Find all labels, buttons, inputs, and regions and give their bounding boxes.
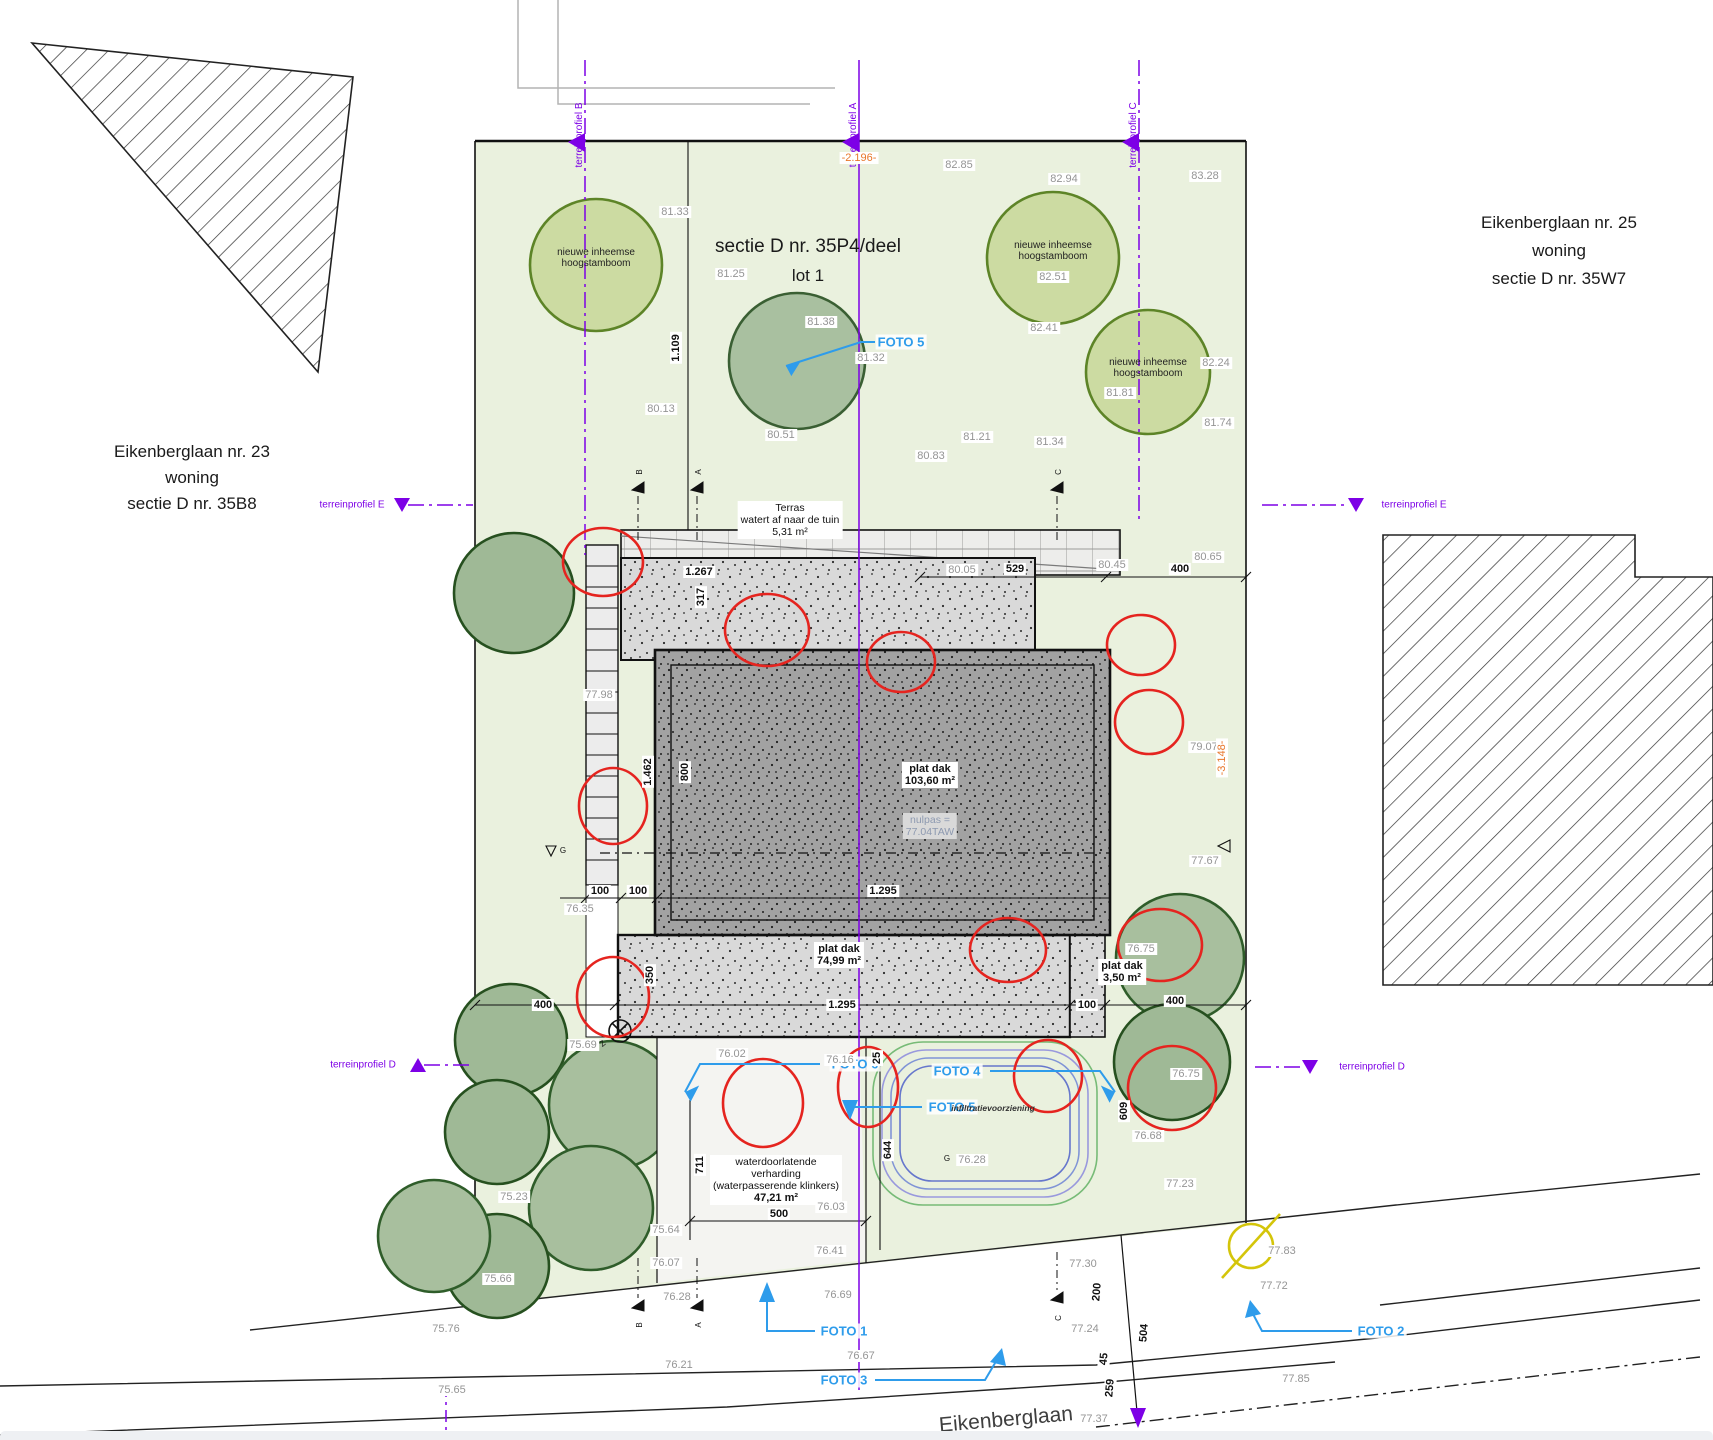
spot-height: 75.23: [498, 1191, 530, 1203]
dimension-label: 200: [1090, 1280, 1104, 1303]
paving-line3: (waterpasserende klinkers): [713, 1180, 839, 1192]
spot-height: 82.85: [943, 159, 975, 171]
spot-height: 76.28: [956, 1154, 988, 1166]
roof-small-label: plat dak 3,50 m²: [1098, 959, 1146, 985]
spot-height: 75.66: [482, 1273, 514, 1285]
foto5-top-label: FOTO 5: [876, 335, 927, 350]
spot-height: 83.28: [1189, 170, 1221, 182]
spot-height: 75.76: [430, 1323, 462, 1335]
nulpas-line2: 77.04TAW: [906, 826, 954, 838]
neighbor-23-line1: Eikenberglaan nr. 23: [114, 439, 270, 465]
tree-label-line2: hoogstamboom: [1109, 368, 1187, 379]
paving-label: waterdoorlatende verharding (waterpasser…: [710, 1155, 842, 1205]
spot-height: 76.35: [564, 903, 596, 915]
dimension-label: 1.295: [826, 999, 858, 1011]
dimension-label: 1.462: [642, 756, 654, 788]
foto4-label: FOTO 4: [932, 1064, 983, 1079]
spot-height: 77.23: [1164, 1178, 1196, 1190]
terras-label: Terras watert af naar de tuin 5,31 m²: [738, 501, 843, 539]
bottom-scrollbar[interactable]: [0, 1431, 1713, 1440]
spot-height: 82.51: [1037, 271, 1069, 283]
profile-label-e-right: terreinprofiel E: [1381, 500, 1446, 511]
dimension-label: 500: [768, 1208, 790, 1220]
spot-height: 76.16: [824, 1054, 856, 1066]
roof-small-line1: plat dak: [1101, 960, 1143, 972]
tree-label-1: nieuwe inheemse hoogstamboom: [557, 247, 635, 269]
profile-label-b: terreinprofiel B: [574, 102, 585, 167]
foto1-label: FOTO 1: [819, 1324, 870, 1339]
spot-height: 76.02: [716, 1048, 748, 1060]
section-marker-letter: A: [695, 1322, 703, 1327]
neighbor-25-line1: Eikenberglaan nr. 25: [1481, 210, 1637, 236]
paving-line1: waterdoorlatende: [713, 1156, 839, 1168]
spot-height: 81.33: [659, 206, 691, 218]
spot-height: 76.07: [650, 1257, 682, 1269]
dimension-label: 711: [694, 1154, 706, 1176]
old-outline-lines: [518, 0, 835, 104]
spot-height: 75.64: [650, 1224, 682, 1236]
roof-main-label: plat dak 103,60 m²: [902, 762, 958, 788]
tree: [378, 1180, 490, 1292]
spot-height: 80.65: [1192, 551, 1224, 563]
section-marker-letter: C: [1055, 1315, 1063, 1321]
terras-line2: watert af naar de tuin: [741, 514, 840, 526]
dimension-label: 100: [589, 885, 611, 897]
tree-label-line2: hoogstamboom: [1014, 251, 1092, 262]
spot-height: 82.94: [1048, 173, 1080, 185]
section-marker-letter: B: [636, 469, 644, 474]
spot-height: 82.41: [1028, 322, 1060, 334]
infiltration-label: infiltratievoorziening: [951, 1103, 1035, 1113]
spot-height: 75.65: [436, 1384, 468, 1396]
dimension-label: 609: [1118, 1100, 1130, 1122]
roof-main-line2: 103,60 m²: [905, 775, 955, 787]
profile-label-e-left: terreinprofiel E: [319, 500, 384, 511]
orange-dimension-label: -3.148-: [1216, 739, 1228, 778]
parcel-title-line1: sectie D nr. 35P4/deel: [715, 236, 901, 258]
spot-height: 76.68: [1132, 1130, 1164, 1142]
section-marker-letter: B: [636, 1322, 644, 1327]
parcel-title-line2: lot 1: [792, 266, 824, 286]
spot-height: 80.83: [915, 450, 947, 462]
tree: [454, 533, 574, 653]
roof-low-line2: 74,99 m²: [817, 955, 861, 967]
spot-height: 81.74: [1202, 417, 1234, 429]
foto3-label: FOTO 3: [819, 1373, 870, 1388]
spot-height: 81.81: [1104, 387, 1136, 399]
dimension-label: 100: [627, 885, 649, 897]
spot-height: 77.83: [1266, 1245, 1298, 1257]
spot-height: 80.51: [765, 429, 797, 441]
profile-label-d-right: terreinprofiel D: [1339, 1062, 1405, 1073]
foto2-label: FOTO 2: [1356, 1324, 1407, 1339]
tree-label-2: nieuwe inheemse hoogstamboom: [1014, 240, 1092, 262]
spot-height: 77.24: [1069, 1323, 1101, 1335]
tree: [445, 1080, 549, 1184]
tree: [729, 293, 865, 429]
dimension-label: 1.267: [683, 566, 715, 578]
dimension-label: 100: [1076, 999, 1098, 1011]
spot-height: 76.69: [822, 1289, 854, 1301]
tree-label-line2: hoogstamboom: [557, 258, 635, 269]
dimension-label: 400: [532, 999, 554, 1011]
roof-small-line2: 3,50 m²: [1103, 972, 1141, 984]
roof-low-label: plat dak 74,99 m²: [814, 942, 864, 968]
profile-label-c: terreinprofiel C: [1128, 102, 1139, 168]
spot-height: 80.45: [1096, 559, 1128, 571]
neighbor-23-line3: sectie D nr. 35B8: [127, 491, 256, 517]
spot-height: 77.30: [1067, 1258, 1099, 1270]
spot-height: 81.25: [715, 268, 747, 280]
spot-height: 76.67: [845, 1350, 877, 1362]
tree-label-line1: nieuwe inheemse: [557, 247, 635, 258]
spot-height: 76.21: [663, 1359, 695, 1371]
spot-height: 77.98: [583, 689, 615, 701]
section-marker-letter: C: [1055, 469, 1063, 475]
dimension-label: 529: [1004, 563, 1026, 575]
neighbor-building-23: [32, 43, 353, 372]
dimension-label: 45: [1097, 1350, 1110, 1367]
nulpas-label: nulpas = 77.04TAW: [903, 813, 957, 839]
spot-height: 77.85: [1280, 1373, 1312, 1385]
dimension-label: 317: [695, 586, 707, 608]
dimension-label: 800: [679, 761, 691, 783]
orange-dimension-label: -2.196-: [840, 152, 879, 164]
section-marker-letter: G: [944, 1155, 950, 1163]
spot-height: 82.24: [1200, 357, 1232, 369]
dimension-label: 1.295: [867, 885, 899, 897]
dimension-label: 644: [882, 1139, 894, 1161]
dimension-label: 400: [1169, 563, 1191, 575]
dimension-label: 504: [1137, 1321, 1151, 1344]
terras-line3: 5,31 m²: [741, 526, 840, 538]
section-marker-letter: A: [695, 469, 703, 474]
spot-height: 75.69: [567, 1039, 599, 1051]
neighbor-25-line3: sectie D nr. 35W7: [1492, 266, 1626, 292]
site-plan-canvas: sectie D nr. 35P4/deel lot 1 Eikenbergla…: [0, 0, 1713, 1440]
spot-height: 76.28: [661, 1291, 693, 1303]
roof-low-line1: plat dak: [818, 943, 860, 955]
spot-height: 76.75: [1170, 1068, 1202, 1080]
paving-line2: verharding: [713, 1168, 839, 1180]
spot-height: 76.03: [815, 1201, 847, 1213]
profile-label-d-left: terreinprofiel D: [330, 1060, 396, 1071]
spot-height: 80.13: [645, 403, 677, 415]
spot-height: 81.21: [961, 431, 993, 443]
tree-label-3: nieuwe inheemse hoogstamboom: [1109, 357, 1187, 379]
tree-label-line1: nieuwe inheemse: [1109, 357, 1187, 368]
tree-label-line1: nieuwe inheemse: [1014, 240, 1092, 251]
spot-height: 76.41: [814, 1245, 846, 1257]
dimension-label: 350: [644, 964, 656, 986]
nulpas-line1: nulpas =: [906, 814, 954, 826]
spot-height: 77.37: [1078, 1413, 1110, 1425]
neighbor-23-line2: woning: [165, 465, 219, 491]
spot-height: 77.72: [1258, 1280, 1290, 1292]
plan-drawing: [0, 0, 1713, 1440]
roof-main-line1: plat dak: [909, 763, 951, 775]
spot-height: 81.34: [1034, 436, 1066, 448]
spot-height: 81.38: [805, 316, 837, 328]
neighbor-25-line2: woning: [1532, 238, 1586, 264]
dimension-label: 400: [1164, 995, 1186, 1007]
dimension-label: 1.109: [670, 332, 682, 364]
dimension-label: 259: [1103, 1376, 1117, 1399]
paving-line4: 47,21 m²: [754, 1192, 798, 1204]
section-marker-letter: G: [560, 847, 566, 855]
spot-height: 80.05: [946, 564, 978, 576]
spot-height: 81.32: [855, 352, 887, 364]
spot-height: 77.67: [1189, 855, 1221, 867]
neighbor-building-25: [1383, 535, 1713, 985]
dimension-label: 25: [871, 1050, 883, 1066]
terras-line1: Terras: [741, 502, 840, 514]
spot-height: 76.75: [1125, 943, 1157, 955]
